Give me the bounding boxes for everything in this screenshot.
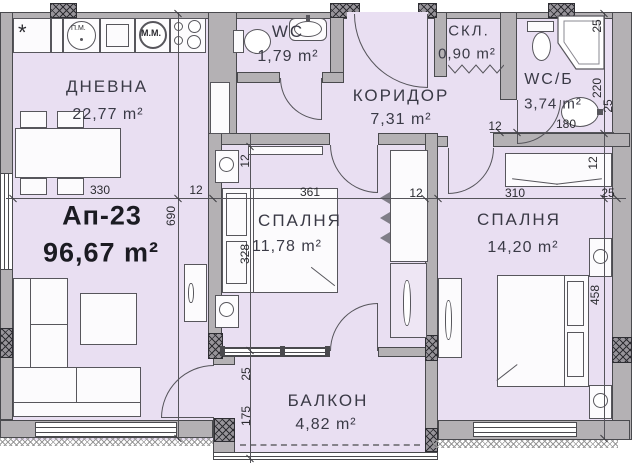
- stove-burner: [188, 20, 201, 33]
- nightstand-lamp: [593, 249, 608, 264]
- balcony-door-leaf: [377, 303, 378, 351]
- window: [0, 173, 13, 270]
- wall: [493, 133, 630, 147]
- wall: [237, 72, 280, 83]
- wall: [612, 12, 632, 440]
- pillow: [567, 281, 584, 326]
- dimension-label: 25: [601, 99, 615, 112]
- room-label-bedroom1: СПАЛНЯ: [258, 211, 342, 231]
- cabinet-handle: [188, 283, 194, 303]
- dimension-label: 330: [90, 183, 110, 197]
- dimension-line-bath: [490, 132, 614, 133]
- apartment-total-area: 96,67 m²: [43, 238, 159, 269]
- stove-burner: [187, 35, 201, 49]
- coffee-table: [80, 293, 137, 345]
- wall: [378, 347, 430, 357]
- dimension-label: 328: [238, 244, 252, 264]
- window: [222, 348, 330, 356]
- room-label-livingroom: ДНЕВНА: [66, 77, 148, 97]
- wardrobe-mark: [380, 212, 390, 224]
- dimension-label: 12: [409, 186, 422, 200]
- entrance-door-leaf: [427, 14, 428, 88]
- room-label-bathroom: WC/Б: [524, 71, 574, 89]
- dimension-label: 175: [239, 406, 253, 426]
- wall: [378, 133, 430, 145]
- oven-door: [106, 24, 129, 47]
- dimension-line-right: [604, 12, 605, 440]
- window: [35, 422, 177, 437]
- chair: [20, 178, 47, 195]
- ground-dashed-line: [240, 444, 420, 446]
- nightstand-lamp: [219, 157, 234, 172]
- dimension-label: 12: [586, 156, 600, 169]
- bedroom1-door-leaf: [377, 145, 378, 193]
- dimension-label: 310: [505, 186, 525, 200]
- pillow: [567, 332, 584, 377]
- room-area-corridor: 7,31 m²: [370, 111, 431, 129]
- sink-mark: *: [18, 20, 27, 46]
- column-hatch: [612, 337, 632, 363]
- room-area-bathroom: 3,74 m²: [524, 96, 582, 113]
- room-label-balcony: БАЛКОН: [288, 391, 369, 411]
- window-post: [280, 346, 285, 356]
- pillow: [226, 193, 247, 236]
- wall: [208, 133, 330, 145]
- toilet: [527, 21, 554, 32]
- wall-niche: [210, 82, 230, 134]
- closet-rail-zigzag: [448, 62, 504, 76]
- column-hatch: [50, 3, 77, 18]
- room-area-balcony: 4,82 m²: [295, 416, 356, 434]
- wardrobe: [390, 150, 428, 262]
- column-hatch: [0, 328, 13, 358]
- room-label-storage: СКЛ.: [448, 23, 490, 40]
- sofa: [13, 367, 141, 417]
- chair: [57, 178, 84, 195]
- nightstand-lamp: [593, 393, 608, 408]
- wall: [434, 12, 447, 77]
- wall: [500, 12, 517, 100]
- toilet: [233, 30, 244, 53]
- wardrobe-mark: [380, 232, 390, 244]
- dimension-label: 25: [239, 367, 253, 380]
- chair: [20, 111, 47, 128]
- cabinet-handle: [445, 300, 452, 340]
- dimension-label: 12: [238, 154, 252, 167]
- apartment-id: Ап-23: [62, 201, 142, 232]
- kitchen-counter: [51, 18, 63, 53]
- room-area-wc: 1,79 m²: [257, 48, 318, 66]
- room-label-wc: WC: [272, 22, 304, 42]
- dimension-label: 220: [590, 78, 604, 98]
- dimension-label: 690: [164, 206, 178, 226]
- dining-table: [15, 128, 121, 178]
- livingroom-balcony-door-leaf: [161, 417, 214, 418]
- room-label-corridor: КОРИДОР: [353, 86, 450, 106]
- nightstand-lamp: [219, 302, 234, 317]
- room-area-bedroom1: 11,78 m²: [252, 238, 322, 256]
- column-hatch: [214, 418, 235, 442]
- room-area-bedroom2: 14,20 m²: [487, 239, 558, 257]
- wall: [322, 72, 344, 83]
- dishwasher-label: М.М.: [141, 28, 161, 38]
- dimension-line-left: [178, 12, 179, 440]
- bedroom2-door-leaf: [448, 148, 449, 194]
- dimension-label: 12: [488, 119, 501, 133]
- washing-machine-label: П.М.: [71, 25, 86, 32]
- cabinet-handle: [403, 280, 411, 326]
- dimension-label: 458: [588, 285, 602, 305]
- window-post: [220, 346, 225, 356]
- insulation-strip: [432, 440, 618, 448]
- floor-plan: * П.М. М.М.: [0, 0, 632, 466]
- bathroom-door-leaf: [517, 100, 518, 144]
- washbasin-tap: [306, 15, 310, 21]
- wall-niche: [248, 146, 323, 155]
- dimension-label: 25: [590, 19, 604, 32]
- room-label-bedroom2: СПАЛНЯ: [477, 210, 561, 230]
- dimension-label: 180: [556, 117, 576, 131]
- window: [473, 422, 577, 437]
- column-hatch: [425, 335, 438, 361]
- wc-door-leaf: [321, 78, 322, 120]
- toilet-bowl: [532, 32, 551, 61]
- washing-machine-dot: [80, 38, 83, 41]
- dimension-label: 12: [189, 183, 202, 197]
- room-area-storage: 0,90 m²: [438, 46, 496, 63]
- dimension-label: 25: [601, 186, 614, 200]
- dimension-label: 361: [300, 185, 320, 199]
- room-area-livingroom: 22,77 m²: [72, 106, 143, 124]
